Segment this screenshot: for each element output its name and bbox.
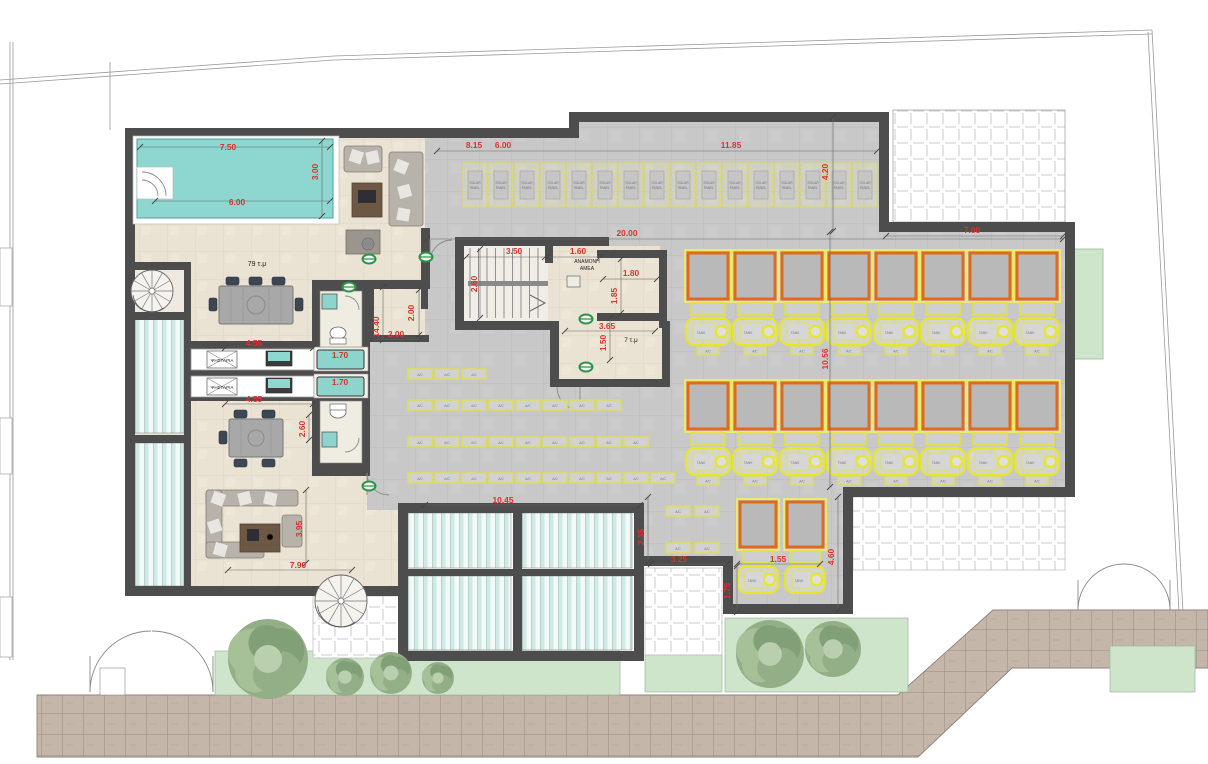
room-label: ΨΗΣΤΑΡΙΑ xyxy=(211,358,235,363)
dimension-label: 2.60 xyxy=(469,276,479,293)
ac-label: A/C xyxy=(987,350,993,354)
wall-segment xyxy=(662,321,670,387)
svg-text:SOLAR: SOLAR xyxy=(625,181,637,185)
solar-collector-panel xyxy=(1017,253,1057,299)
exit-symbol xyxy=(363,482,376,491)
ac-label: A/C xyxy=(606,477,612,481)
ac-label: A/C xyxy=(444,404,450,408)
tree xyxy=(370,652,412,694)
ac-label: A/C xyxy=(675,547,681,551)
manifold xyxy=(926,433,960,445)
svg-text:PANEL: PANEL xyxy=(782,186,793,190)
dimension-label: 1.60 xyxy=(570,246,587,256)
solar-collector-panel xyxy=(688,253,728,299)
ac-label: A/C xyxy=(893,480,899,484)
tank-label: TANK xyxy=(979,461,988,465)
tank-label: TANK xyxy=(744,331,753,335)
ac-label: A/C xyxy=(1034,350,1040,354)
ac-label: A/C xyxy=(525,441,531,445)
ac-unit: A/C xyxy=(489,437,513,447)
exit-symbol xyxy=(363,255,376,264)
ac-unit: A/C xyxy=(408,369,432,379)
pergola-bottom-right xyxy=(853,497,1065,570)
ac-unit: A/C xyxy=(543,473,567,483)
svg-text:PANEL: PANEL xyxy=(548,186,559,190)
ac-label: A/C xyxy=(579,404,585,408)
ac-unit: A/C xyxy=(666,543,690,553)
solar-water-heater-unit: TANKA/C xyxy=(685,250,731,355)
wall-segment xyxy=(569,112,889,122)
solar-water-heater-unit: TANKA/C xyxy=(732,250,778,355)
svg-text:SOLAR: SOLAR xyxy=(729,181,741,185)
manifold xyxy=(832,433,866,445)
side-planter xyxy=(1073,249,1103,359)
solar-water-heater-unit: TANK xyxy=(784,499,826,593)
wall-segment xyxy=(455,321,555,330)
dimension-label: 6.00 xyxy=(229,197,246,207)
tree xyxy=(736,620,804,688)
dimension-label: 4.55 xyxy=(246,338,263,348)
ac-label: A/C xyxy=(444,441,450,445)
ac-unit: A/C xyxy=(462,437,486,447)
ac-label: A/C xyxy=(846,350,852,354)
dimension-label: 8.15 xyxy=(466,140,483,150)
solar-collector-panel xyxy=(876,383,916,429)
ac-label: A/C xyxy=(525,404,531,408)
ac-unit: A/C xyxy=(489,473,513,483)
svg-text:PANEL: PANEL xyxy=(470,186,481,190)
wall-segment xyxy=(421,287,428,309)
toilet xyxy=(330,327,346,339)
dimension-label: 1.80 xyxy=(623,268,640,278)
manifold xyxy=(743,551,773,563)
svg-text:PANEL: PANEL xyxy=(574,186,585,190)
solar-water-heater-unit: TANKA/C xyxy=(967,380,1013,485)
ac-unit: A/C xyxy=(516,437,540,447)
ac-label: A/C xyxy=(444,373,450,377)
ac-label: A/C xyxy=(1034,480,1040,484)
solar-water-heater-unit: TANKA/C xyxy=(685,380,731,485)
ac-label: A/C xyxy=(471,441,477,445)
solar-water-heater-unit: TANKA/C xyxy=(779,250,825,355)
exit-symbol xyxy=(580,363,593,372)
ac-unit: A/C xyxy=(695,506,719,516)
tank-label: TANK xyxy=(1026,461,1035,465)
exit-symbol xyxy=(580,315,593,324)
ac-unit: A/C xyxy=(408,400,432,410)
manifold xyxy=(832,303,866,315)
ac-unit: A/C xyxy=(435,400,459,410)
ac-label: A/C xyxy=(799,350,805,354)
ac-label: A/C xyxy=(498,441,504,445)
amea-fixture xyxy=(567,276,580,287)
ac-label: A/C xyxy=(893,350,899,354)
wall-segment xyxy=(125,262,191,270)
solar-water-heater-unit: TANK xyxy=(737,499,779,593)
manifold xyxy=(790,551,820,563)
wall-segment xyxy=(879,112,889,232)
solar-panel: SOLARPANEL xyxy=(671,163,695,207)
dimension-label: 2.00 xyxy=(406,305,416,322)
pergola-bottom-middle xyxy=(645,568,722,655)
ac-label: A/C xyxy=(660,477,666,481)
svg-text:SOLAR: SOLAR xyxy=(521,181,533,185)
ac-unit: A/C xyxy=(435,473,459,483)
ac-unit: A/C xyxy=(408,473,432,483)
wall-segment xyxy=(1065,222,1075,497)
ac-unit: A/C xyxy=(462,473,486,483)
ac-label: A/C xyxy=(579,441,585,445)
ac-label: A/C xyxy=(752,350,758,354)
ac-label: A/C xyxy=(799,480,805,484)
solar-panel: SOLARPANEL xyxy=(567,163,591,207)
solar-water-heater-unit: TANKA/C xyxy=(779,380,825,485)
solar-panel: SOLARPANEL xyxy=(853,163,877,207)
ac-label: A/C xyxy=(444,477,450,481)
dimension-label: 10.56 xyxy=(820,348,830,369)
ac-unit: A/C xyxy=(695,543,719,553)
ac-label: A/C xyxy=(417,441,423,445)
room-label: ΨΗΣΤΑΡΙΑ xyxy=(211,385,235,390)
dimension-label: 1.70 xyxy=(332,377,349,387)
manifold xyxy=(738,303,772,315)
solar-collector-panel xyxy=(787,502,823,547)
solar-panel: SOLARPANEL xyxy=(775,163,799,207)
dimension-label: 7.00 xyxy=(964,225,981,235)
ac-label: A/C xyxy=(752,480,758,484)
exit-symbol xyxy=(420,253,433,262)
gate-left xyxy=(90,631,213,695)
tree xyxy=(326,658,364,696)
dimension-label: 6.00 xyxy=(495,140,512,150)
ac-label: A/C xyxy=(606,441,612,445)
svg-text:PANEL: PANEL xyxy=(808,186,819,190)
wall-segment xyxy=(723,604,853,614)
manifold xyxy=(785,433,819,445)
solar-collector-panel xyxy=(876,253,916,299)
svg-text:SOLAR: SOLAR xyxy=(573,181,585,185)
wall-segment xyxy=(184,262,191,596)
room-label: 7 τ.μ xyxy=(624,337,638,344)
svg-text:PANEL: PANEL xyxy=(704,186,715,190)
svg-text:SOLAR: SOLAR xyxy=(651,181,663,185)
tank-label: TANK xyxy=(697,461,706,465)
ac-unit: A/C xyxy=(570,400,594,410)
ac-label: A/C xyxy=(417,404,423,408)
dimension-label: 3.65 xyxy=(599,321,616,331)
room-label: ΑΝΑΜΟΝΗ xyxy=(574,259,600,265)
solar-collector-panel xyxy=(829,383,869,429)
solar-collector-panel xyxy=(923,253,963,299)
ac-label: A/C xyxy=(705,480,711,484)
ac-label: A/C xyxy=(579,477,585,481)
svg-text:SOLAR: SOLAR xyxy=(469,181,481,185)
ac-label: A/C xyxy=(525,477,531,481)
tank-label: TANK xyxy=(932,331,941,335)
ac-label: A/C xyxy=(633,441,639,445)
ac-label: A/C xyxy=(417,477,423,481)
skylight-left-upper xyxy=(135,318,184,433)
svg-text:SOLAR: SOLAR xyxy=(755,181,767,185)
tank-label: TANK xyxy=(1026,331,1035,335)
ac-unit: A/C xyxy=(435,369,459,379)
dimension-label: 2.60 xyxy=(297,421,307,438)
solar-panel: SOLARPANEL xyxy=(515,163,539,207)
solar-collector-panel xyxy=(782,383,822,429)
ac-label: A/C xyxy=(552,404,558,408)
tank-label: TANK xyxy=(932,461,941,465)
svg-text:SOLAR: SOLAR xyxy=(807,181,819,185)
wall-segment xyxy=(597,313,667,321)
solar-water-heater-unit: TANKA/C xyxy=(873,380,919,485)
pergola-top-right xyxy=(893,110,1065,222)
dimension-label: 4.20 xyxy=(820,164,830,181)
dimension-label: 2.35 xyxy=(636,529,646,546)
ac-label: A/C xyxy=(633,477,639,481)
ac-unit: A/C xyxy=(489,400,513,410)
solar-panel: SOLARPANEL xyxy=(697,163,721,207)
svg-text:PANEL: PANEL xyxy=(600,186,611,190)
tank-label: TANK xyxy=(885,331,894,335)
dimension-label: 1.50 xyxy=(598,335,608,352)
floor-plan-canvas: SOLARPANELSOLARPANELSOLARPANELSOLARPANEL… xyxy=(0,0,1208,764)
wall-segment xyxy=(455,237,609,246)
solar-collector-panel xyxy=(970,253,1010,299)
wall-segment xyxy=(513,503,522,661)
manifold xyxy=(785,303,819,315)
skylight-left-lower xyxy=(135,443,184,586)
tank-label: TANK xyxy=(795,579,804,583)
ac-unit: A/C xyxy=(543,400,567,410)
manifold xyxy=(879,433,913,445)
solar-water-heater-unit: TANKA/C xyxy=(920,380,966,485)
solar-water-heater-unit: TANKA/C xyxy=(920,250,966,355)
solar-panel: SOLARPANEL xyxy=(749,163,773,207)
manifold xyxy=(973,433,1007,445)
wall-segment xyxy=(597,250,667,258)
svg-text:SOLAR: SOLAR xyxy=(547,181,559,185)
ac-unit: A/C xyxy=(462,369,486,379)
solar-panel: SOLARPANEL xyxy=(723,163,747,207)
solar-collector-panel xyxy=(782,253,822,299)
ac-unit: A/C xyxy=(570,437,594,447)
ac-unit: A/C xyxy=(516,400,540,410)
ac-unit: A/C xyxy=(666,506,690,516)
ac-unit: A/C xyxy=(570,473,594,483)
solar-panel: SOLARPANEL xyxy=(463,163,487,207)
solar-collector-panel xyxy=(829,253,869,299)
tank-label: TANK xyxy=(791,461,800,465)
dimension-label: 1.85 xyxy=(609,288,619,305)
manifold xyxy=(738,433,772,445)
ac-label: A/C xyxy=(675,510,681,514)
wall-segment xyxy=(125,435,191,443)
solar-collector-panel xyxy=(735,253,775,299)
ac-unit: A/C xyxy=(435,437,459,447)
dimension-label: 3.50 xyxy=(506,246,523,256)
ac-label: A/C xyxy=(498,477,504,481)
ac-label: A/C xyxy=(552,477,558,481)
dimension-label: 1.70 xyxy=(332,350,349,360)
wall-segment xyxy=(634,503,644,661)
ac-label: A/C xyxy=(471,477,477,481)
dimension-label: 3.95 xyxy=(294,521,304,538)
solar-water-heater-unit: TANKA/C xyxy=(1014,380,1060,485)
ac-label: A/C xyxy=(940,480,946,484)
dimension-label: 14.40 xyxy=(371,316,381,337)
svg-text:SOLAR: SOLAR xyxy=(677,181,689,185)
floor-plan-drawing: SOLARPANELSOLARPANELSOLARPANELSOLARPANEL… xyxy=(0,0,1208,764)
wall-segment xyxy=(125,312,191,320)
svg-text:PANEL: PANEL xyxy=(860,186,871,190)
ac-label: A/C xyxy=(471,373,477,377)
dimension-label: 3.25 xyxy=(671,554,688,564)
tank-label: TANK xyxy=(885,461,894,465)
manifold xyxy=(1020,433,1054,445)
ac-unit: A/C xyxy=(597,437,621,447)
ac-label: A/C xyxy=(987,480,993,484)
wc-sink xyxy=(322,294,337,309)
dimension-label: 7.90 xyxy=(290,560,307,570)
ac-label: A/C xyxy=(704,510,710,514)
dimension-label: 4.60 xyxy=(826,549,836,566)
manifold xyxy=(973,303,1007,315)
solar-collector-panel xyxy=(923,383,963,429)
tree xyxy=(228,619,308,699)
svg-text:PANEL: PANEL xyxy=(730,186,741,190)
wall-segment xyxy=(398,503,408,661)
solar-panel: SOLARPANEL xyxy=(593,163,617,207)
svg-text:SOLAR: SOLAR xyxy=(599,181,611,185)
wc-lower xyxy=(320,401,362,463)
exit-symbol xyxy=(343,283,356,292)
svg-text:PANEL: PANEL xyxy=(652,186,663,190)
svg-text:SOLAR: SOLAR xyxy=(833,181,845,185)
ac-unit: A/C xyxy=(516,473,540,483)
tree xyxy=(422,662,454,694)
dimension-label: 20.00 xyxy=(617,228,638,238)
ac-unit: A/C xyxy=(624,473,648,483)
ac-unit: A/C xyxy=(408,437,432,447)
solar-water-heater-unit: TANKA/C xyxy=(967,250,1013,355)
solar-panel: SOLARPANEL xyxy=(645,163,669,207)
wall-segment xyxy=(550,379,670,387)
svg-text:SOLAR: SOLAR xyxy=(703,181,715,185)
dimension-label: 1.55 xyxy=(770,554,787,564)
manifold xyxy=(1020,303,1054,315)
svg-text:PANEL: PANEL xyxy=(522,186,533,190)
dimension-label: 4.55 xyxy=(246,394,263,404)
dimension-label: 7.50 xyxy=(220,142,237,152)
ac-unit: A/C xyxy=(624,437,648,447)
ac-label: A/C xyxy=(552,441,558,445)
solar-collector-panel xyxy=(1017,383,1057,429)
tree xyxy=(805,621,861,677)
ac-label: A/C xyxy=(498,404,504,408)
gate-right xyxy=(1078,564,1170,610)
tank-label: TANK xyxy=(744,461,753,465)
ac-unit: A/C xyxy=(597,400,621,410)
svg-text:SOLAR: SOLAR xyxy=(859,181,871,185)
manifold xyxy=(691,303,725,315)
solar-water-heater-unit: TANKA/C xyxy=(1014,250,1060,355)
ac-label: A/C xyxy=(704,547,710,551)
svg-text:SOLAR: SOLAR xyxy=(781,181,793,185)
solar-water-heater-unit: TANKA/C xyxy=(732,380,778,485)
room-label: ΑΜΕΑ xyxy=(580,266,595,272)
dimension-label: 1.75 xyxy=(722,583,732,600)
svg-text:PANEL: PANEL xyxy=(834,186,845,190)
solar-water-heater-unit: TANKA/C xyxy=(826,380,872,485)
svg-text:PANEL: PANEL xyxy=(626,186,637,190)
tank-label: TANK xyxy=(838,331,847,335)
wall-segment xyxy=(455,237,464,330)
dimension-label: 3.00 xyxy=(310,164,320,181)
tank-label: TANK xyxy=(748,579,757,583)
solar-collector-panel xyxy=(970,383,1010,429)
dimension-label: 11.85 xyxy=(721,140,742,150)
wall-segment xyxy=(550,321,559,387)
tank-label: TANK xyxy=(979,331,988,335)
spiral-staircase xyxy=(315,575,367,627)
ac-label: A/C xyxy=(606,404,612,408)
grill-station-upper xyxy=(191,349,314,370)
tank-label: TANK xyxy=(791,331,800,335)
solar-collector-panel xyxy=(740,502,776,547)
room-label: 79 τ.μ xyxy=(248,261,266,268)
ac-label: A/C xyxy=(940,350,946,354)
svg-text:PANEL: PANEL xyxy=(496,186,507,190)
wall-segment xyxy=(843,487,1075,497)
solar-collector-panel xyxy=(688,383,728,429)
ac-label: A/C xyxy=(846,480,852,484)
manifold xyxy=(691,433,725,445)
manifold xyxy=(926,303,960,315)
wall-segment xyxy=(843,487,853,614)
ac-unit: A/C xyxy=(462,400,486,410)
solar-panel: SOLARPANEL xyxy=(489,163,513,207)
solar-panel: SOLARPANEL xyxy=(619,163,643,207)
spiral-staircase xyxy=(131,270,173,312)
ac-unit: A/C xyxy=(651,473,675,483)
dimension-label: 2.00 xyxy=(388,329,405,339)
svg-text:PANEL: PANEL xyxy=(678,186,689,190)
wall-segment xyxy=(398,569,644,576)
svg-text:PANEL: PANEL xyxy=(756,186,767,190)
ac-unit: A/C xyxy=(543,437,567,447)
manifold xyxy=(879,303,913,315)
solar-water-heater-unit: TANKA/C xyxy=(826,250,872,355)
solar-collector-panel xyxy=(735,383,775,429)
dimension-label: 10.45 xyxy=(493,495,514,505)
solar-water-heater-unit: TANKA/C xyxy=(873,250,919,355)
coffee-table xyxy=(240,524,280,552)
ac-label: A/C xyxy=(471,404,477,408)
svg-text:SOLAR: SOLAR xyxy=(495,181,507,185)
tank-label: TANK xyxy=(697,331,706,335)
ac-label: A/C xyxy=(705,350,711,354)
wc-upper xyxy=(320,291,362,347)
tank-label: TANK xyxy=(838,461,847,465)
solar-panel: SOLARPANEL xyxy=(541,163,565,207)
wc-sink xyxy=(322,432,337,447)
ac-unit: A/C xyxy=(597,473,621,483)
ac-label: A/C xyxy=(417,373,423,377)
solar-panel: SOLARPANEL xyxy=(827,163,851,207)
